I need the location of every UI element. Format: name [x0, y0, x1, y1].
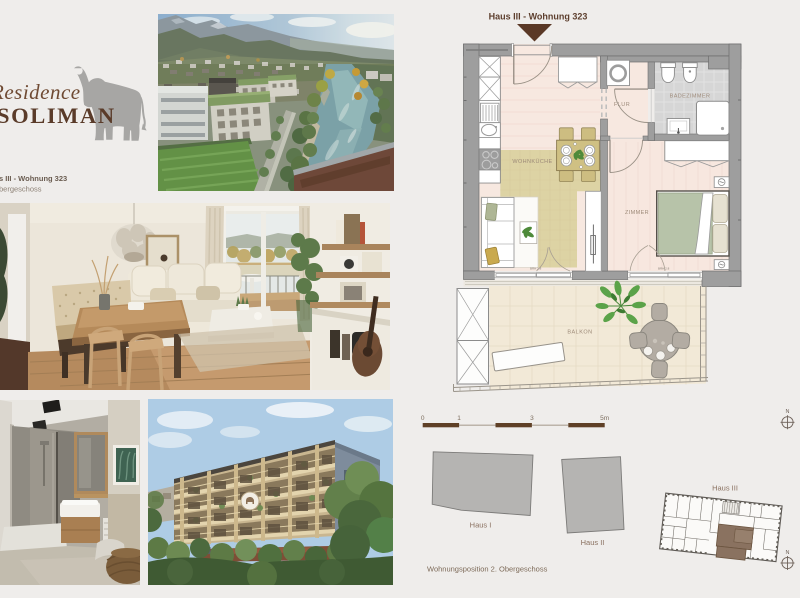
- svg-text:BADEZIMMER: BADEZIMMER: [670, 94, 711, 100]
- svg-text:5m: 5m: [600, 415, 609, 422]
- svg-text:1: 1: [457, 415, 461, 422]
- svg-text:bergeschoss: bergeschoss: [0, 185, 42, 194]
- svg-text:Haus III: Haus III: [712, 484, 738, 493]
- svg-text:Wohnungsposition 2. Obergescho: Wohnungsposition 2. Obergeschoss: [427, 565, 548, 574]
- svg-text:BRH 2.8: BRH 2.8: [530, 266, 542, 270]
- svg-text:Haus II: Haus II: [581, 538, 605, 547]
- svg-text:0: 0: [421, 415, 425, 422]
- svg-text:Residence: Residence: [0, 80, 81, 104]
- svg-text:Haus III - Wohnung 323: Haus III - Wohnung 323: [489, 12, 588, 22]
- svg-text:ZIMMER: ZIMMER: [625, 210, 649, 216]
- svg-text:BRH 2.8: BRH 2.8: [658, 266, 670, 270]
- svg-text:FLUR: FLUR: [614, 102, 630, 108]
- svg-text:SOLIMAN: SOLIMAN: [0, 103, 116, 128]
- svg-text:3: 3: [530, 415, 534, 422]
- svg-text:s III - Wohnung 323: s III - Wohnung 323: [0, 174, 67, 183]
- svg-text:Haus I: Haus I: [470, 521, 492, 530]
- svg-text:N: N: [786, 409, 790, 415]
- svg-text:N: N: [786, 550, 790, 556]
- svg-text:WOHNKÜCHE: WOHNKÜCHE: [512, 158, 552, 165]
- svg-text:BALKON: BALKON: [567, 330, 592, 336]
